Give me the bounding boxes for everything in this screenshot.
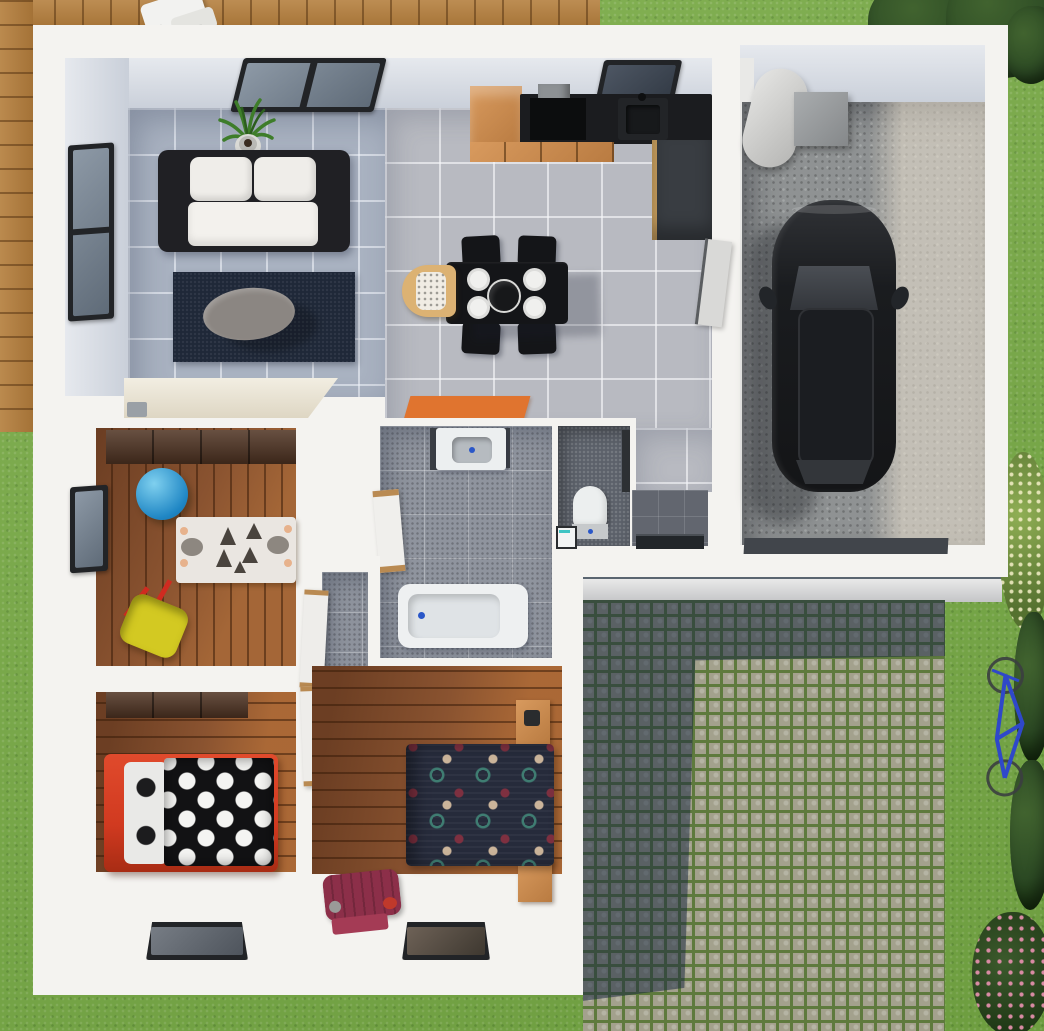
- serving-bowl: [487, 279, 521, 313]
- toilet-flush-button: [588, 529, 593, 534]
- radio: [127, 402, 147, 417]
- bedroom2-window: [402, 922, 490, 960]
- utility-box: [794, 92, 848, 146]
- gym-ball: [136, 468, 188, 520]
- mini-basin-water: [559, 530, 570, 533]
- plate: [523, 296, 546, 319]
- sideboard: [124, 378, 338, 418]
- kitchen-window-glass: [602, 65, 676, 95]
- bedroom1-window: [146, 922, 248, 960]
- toilet: [573, 486, 607, 528]
- bedroom1-pillow: [124, 762, 168, 864]
- kitchen-oak-column: [470, 86, 522, 144]
- hall-floor-east: [632, 428, 712, 492]
- bathroom-vanity: [436, 428, 506, 470]
- sink-basin: [626, 105, 660, 134]
- tall-cabinet: [652, 140, 712, 240]
- sofa: [158, 150, 350, 252]
- kitchen-sink: [618, 98, 668, 140]
- kids-room-window-glass: [75, 490, 103, 568]
- car-front-highlight: [792, 205, 876, 214]
- car-rear-window: [796, 460, 872, 484]
- bedroom2-nightstand: [516, 700, 550, 744]
- sofa-back-cushion: [254, 157, 316, 201]
- floorplan-render: [0, 0, 1044, 1031]
- orange-doormat: [404, 396, 531, 420]
- front-door: [636, 534, 704, 549]
- living-side-window: [68, 142, 114, 321]
- garage-threshold-mat: [744, 538, 949, 554]
- kitchen-drawer-fronts: [470, 142, 614, 162]
- zebra-play-rug: [176, 517, 296, 583]
- wood-deck-top: [0, 0, 600, 27]
- bedroom2-window-glass: [407, 927, 485, 955]
- sofa-seat: [188, 202, 318, 246]
- entrance-step: [583, 577, 1002, 602]
- bathtub-drain: [418, 612, 425, 619]
- car-roof-glass: [798, 308, 874, 466]
- sofa-back-cushion: [190, 157, 252, 201]
- bathtub: [398, 584, 528, 648]
- suitcase-wheel: [328, 900, 341, 913]
- high-chair-seat: [416, 272, 446, 310]
- suitcase: [322, 868, 402, 922]
- cobblestone-driveway: [583, 600, 945, 1031]
- driveway-shadow: [583, 600, 945, 1031]
- bedroom1-window-glass: [151, 927, 243, 955]
- bedroom2-duvet: [406, 744, 554, 866]
- car: [772, 200, 896, 492]
- kids-room-window: [70, 485, 108, 574]
- kids-wardrobe: [106, 430, 296, 464]
- zebra-rug-pattern: [176, 517, 296, 583]
- plate: [523, 268, 546, 291]
- pink-flower-bush-corner: [972, 912, 1044, 1031]
- bedroom1-duvet: [164, 758, 274, 866]
- car-windshield: [790, 266, 878, 310]
- high-chair: [402, 265, 456, 317]
- wc-door-edge: [622, 430, 630, 492]
- wc-mini-basin: [556, 526, 577, 549]
- suitcase-handle: [382, 896, 397, 909]
- sink-faucet: [638, 93, 646, 101]
- cooktop: [530, 98, 586, 140]
- plate: [467, 268, 490, 291]
- toilet-tank: [572, 524, 608, 539]
- nightstand-lamp: [524, 710, 540, 726]
- basin-drain: [469, 447, 475, 453]
- bedroom1-wardrobe: [106, 692, 248, 718]
- wood-deck-left: [0, 0, 33, 432]
